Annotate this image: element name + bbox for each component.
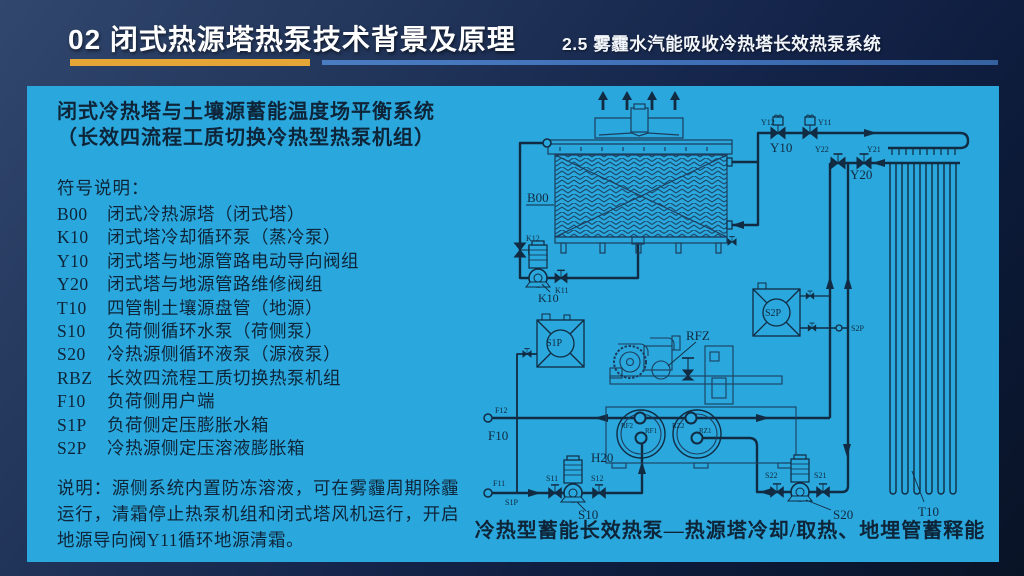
legend-row: S2P冷热源侧定压溶液膨胀箱 xyxy=(57,437,459,460)
fan-motor xyxy=(631,108,648,132)
label-y10: Y10 xyxy=(770,140,792,155)
label-y12: Y12 xyxy=(761,118,775,127)
valve-group-y10 xyxy=(771,115,817,139)
legend-row: S10负荷侧循环水泵（荷侧泵） xyxy=(57,320,459,343)
connector-f11 xyxy=(484,489,492,497)
slide-title: 02 闭式热源塔热泵技术背景及原理 xyxy=(68,18,516,58)
valve-s22 xyxy=(771,484,784,497)
pump-k10 xyxy=(526,241,550,287)
legend-row: B00闭式冷热源塔（闭式塔） xyxy=(57,203,459,226)
legend-row: RBZ长效四流程工质切换热泵机组 xyxy=(57,367,459,390)
legend-row: S1P负荷侧定压膨胀水箱 xyxy=(57,414,459,437)
pump-s10 xyxy=(561,456,585,502)
legend-row: Y10闭式塔与地源管路电动导向阀组 xyxy=(57,250,459,273)
label-rf1: RF1 xyxy=(645,427,658,435)
tank-valve xyxy=(806,291,814,299)
valve-s21 xyxy=(817,484,830,497)
valve-y22 xyxy=(831,154,845,169)
label-s11: S11 xyxy=(546,474,558,483)
label-s2p-tank: S2P xyxy=(765,308,782,319)
label-y21: Y21 xyxy=(867,145,881,154)
tank-valve xyxy=(523,349,531,358)
label-h20: H20 xyxy=(591,450,613,465)
valve-s11 xyxy=(549,485,562,498)
valve-y11 xyxy=(803,115,817,139)
label-s12: S12 xyxy=(591,474,603,483)
label-rfz: RFZ xyxy=(686,328,710,343)
label-s1p-point: S1P xyxy=(505,498,518,507)
label-k12: K12 xyxy=(526,234,540,243)
tower-top-port xyxy=(543,139,551,147)
legend-row: F10负荷侧用户端 xyxy=(57,390,459,413)
drain-valve xyxy=(728,237,736,246)
gold-accent-bar xyxy=(70,59,310,66)
ground-coil-t10 xyxy=(890,164,956,502)
label-s21: S21 xyxy=(814,471,826,480)
slide-subtitle: 2.5 雾霾水汽能吸收冷热塔长效热泵系统 xyxy=(562,31,881,56)
tank-valve xyxy=(808,323,816,331)
fan-blade xyxy=(599,133,679,136)
label-f11: F11 xyxy=(493,479,505,488)
label-s1p-tank: S1P xyxy=(546,338,563,349)
label-k10: K10 xyxy=(538,291,559,305)
pump-k10-group xyxy=(515,241,567,292)
port-rf2 xyxy=(635,413,646,424)
label-y22: Y22 xyxy=(815,145,829,154)
label-rz1: RZ1 xyxy=(699,427,712,435)
label-rz2: RZ2 xyxy=(672,422,685,430)
pump-s20 xyxy=(788,455,812,501)
system-heading: 闭式冷热塔与土壤源蓄能温度场平衡系统 （长效四流程工质切换冷热型热泵机组） xyxy=(57,99,459,151)
unit-valve xyxy=(682,358,694,380)
port-rz2 xyxy=(686,413,697,424)
cooling-tower xyxy=(543,91,736,253)
valve-k12 xyxy=(515,243,530,257)
label-f10: F10 xyxy=(488,428,508,443)
connector-f12 xyxy=(484,414,492,422)
heat-pump-unit xyxy=(606,336,796,468)
legend-row: Y20闭式塔与地源管路维修阀组 xyxy=(57,273,459,296)
system-diagram: B00 K12 K11 K10 Y12 Y11 Y10 Y22 Y21 Y20 … xyxy=(460,86,1000,566)
label-y20: Y20 xyxy=(850,167,872,182)
label-s2p-point: S2P xyxy=(851,324,864,333)
valve-s12 xyxy=(593,485,606,498)
symbol-legend: B00闭式冷热源塔（闭式塔） K10闭式塔冷却循环泵（蒸冷泵） Y10闭式塔与地… xyxy=(57,203,459,460)
left-text-column: 闭式冷热塔与土壤源蓄能温度场平衡系统 （长效四流程工质切换冷热型热泵机组） 符号… xyxy=(57,99,459,553)
label-b00: B00 xyxy=(527,190,549,205)
heading-line2: （长效四流程工质切换冷热型热泵机组） xyxy=(57,125,459,151)
label-y11: Y11 xyxy=(818,118,831,127)
legend-row: K10闭式塔冷却循环泵（蒸冷泵） xyxy=(57,226,459,249)
legend-title: 符号说明： xyxy=(57,175,459,200)
legend-row: S20冷热源侧循环液泵（源液泵） xyxy=(57,343,459,366)
label-s22: S22 xyxy=(765,471,777,480)
heading-line1: 闭式冷热塔与土壤源蓄能温度场平衡系统 xyxy=(57,99,459,125)
presentation-slide: 02 闭式热源塔热泵技术背景及原理 2.5 雾霾水汽能吸收冷热塔长效热泵系统 闭… xyxy=(0,0,1024,576)
legend-row: T10四管制土壤源盘管（地源） xyxy=(57,297,459,320)
blue-accent-bar xyxy=(322,60,998,65)
note-paragraph: 说明：源侧系统内置防冻溶液，可在雾霾周期除霾运行，清霜停止热泵机组和闭式塔风机运… xyxy=(57,475,459,553)
label-rf2: RF2 xyxy=(621,422,634,430)
valve-k11 xyxy=(555,270,567,282)
diagram-caption: 冷热型蓄能长效热泵—热源塔冷却/取热、地埋管蓄释能 xyxy=(462,514,998,543)
label-f12: F12 xyxy=(495,406,507,415)
